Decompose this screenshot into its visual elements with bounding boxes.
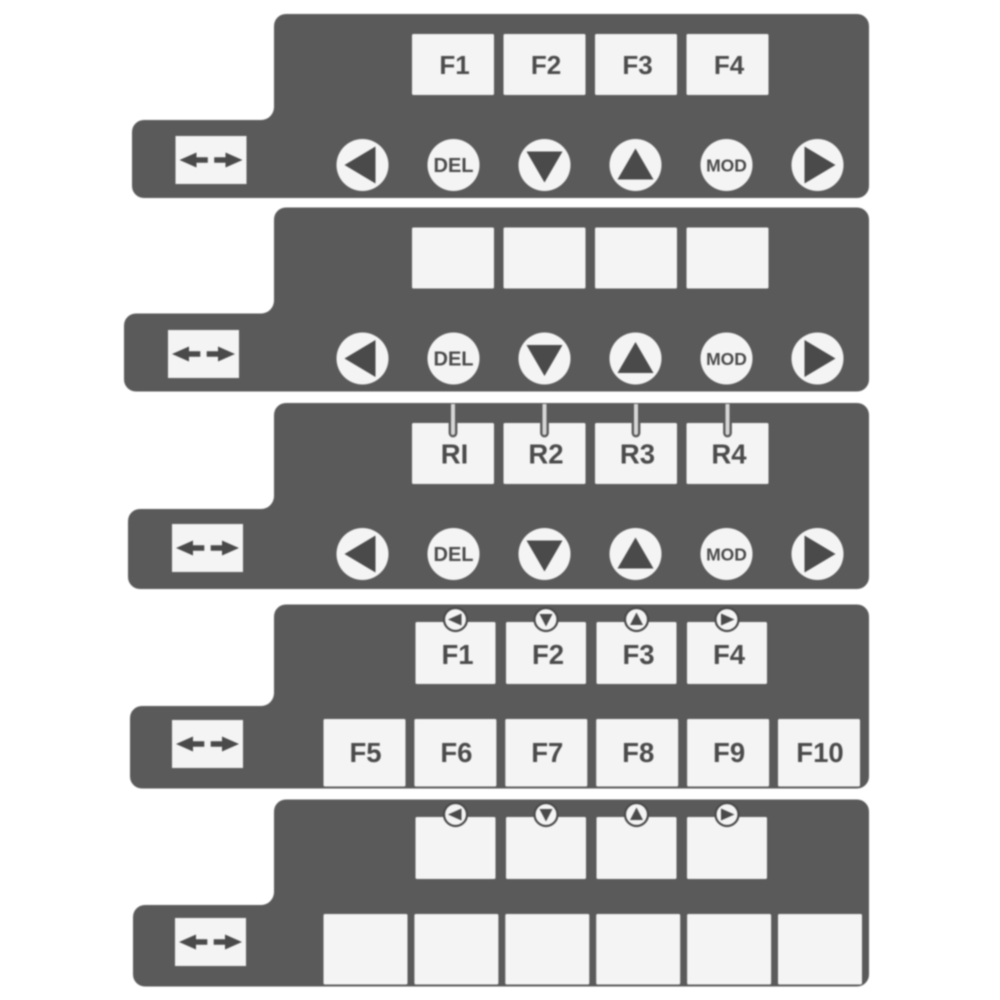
svg-text:F3: F3 xyxy=(622,50,652,80)
svg-text:MOD: MOD xyxy=(706,545,747,565)
svg-text:MOD: MOD xyxy=(706,156,747,176)
svg-text:F10: F10 xyxy=(796,737,843,768)
svg-text:DEL: DEL xyxy=(434,349,474,371)
svg-text:DEL: DEL xyxy=(434,155,474,177)
svg-text:R2: R2 xyxy=(528,438,563,469)
svg-text:F1: F1 xyxy=(441,639,473,670)
svg-text:F1: F1 xyxy=(439,50,469,80)
svg-text:R3: R3 xyxy=(620,438,655,469)
svg-text:F7: F7 xyxy=(531,737,563,768)
svg-text:F4: F4 xyxy=(713,639,746,670)
svg-text:F2: F2 xyxy=(532,639,564,670)
svg-text:F8: F8 xyxy=(622,737,654,768)
svg-text:DEL: DEL xyxy=(434,544,474,566)
svg-text:RI: RI xyxy=(441,438,469,469)
svg-text:F9: F9 xyxy=(713,737,745,768)
svg-text:F2: F2 xyxy=(531,50,561,80)
svg-text:F5: F5 xyxy=(349,737,381,768)
svg-text:F6: F6 xyxy=(440,737,472,768)
svg-text:MOD: MOD xyxy=(706,349,747,369)
svg-text:F3: F3 xyxy=(622,639,654,670)
svg-text:F4: F4 xyxy=(714,50,745,80)
svg-text:R4: R4 xyxy=(711,438,747,469)
